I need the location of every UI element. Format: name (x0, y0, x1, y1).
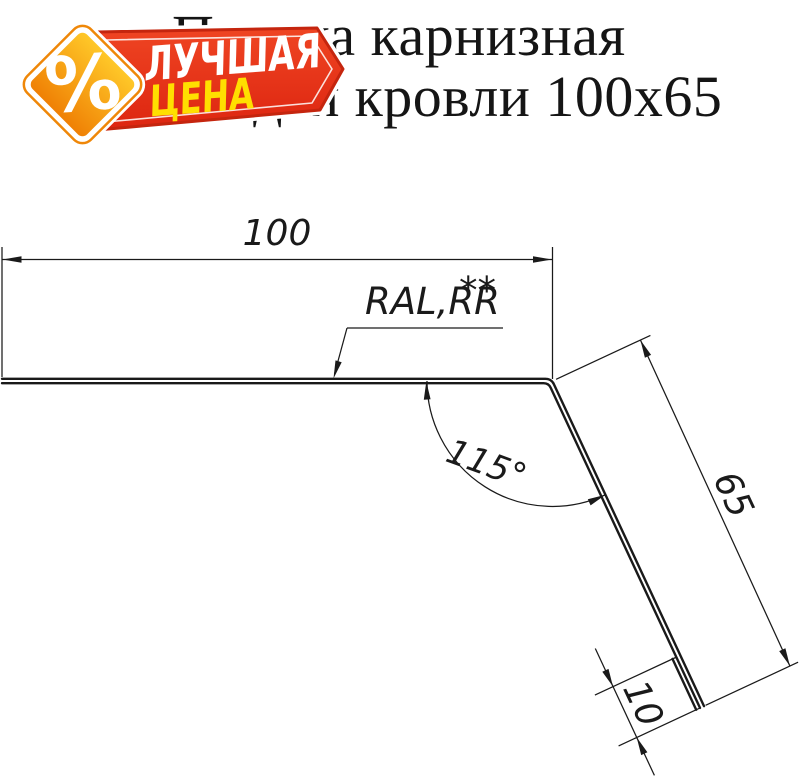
badge-line2: ЦЕНА (149, 69, 255, 127)
coating-note-stars: ** (459, 269, 496, 312)
arrowhead-65-bottom (779, 648, 790, 666)
dim-100-label: 100 (243, 213, 312, 254)
profile-outline (2, 379, 704, 710)
eaves-strip-drawing: 100 RAL,RR ** 65 10 115° (0, 0, 799, 776)
best-price-badge: ЛУЧШАЯ ЦЕНА % (17, 19, 343, 149)
percent-icon: % (42, 36, 124, 130)
arrowhead-10-bottom (637, 737, 648, 755)
coating-leader (335, 328, 504, 374)
arrowhead-leader (334, 360, 342, 378)
arrowhead-10-top (602, 669, 613, 687)
product-technical-image: Планка карнизная для кровли 100x65 (0, 0, 799, 776)
arrowhead-100-right (533, 256, 552, 262)
dim-65-label: 65 (705, 465, 762, 524)
arrowhead-100-left (3, 256, 22, 262)
arrowhead-65-top (640, 340, 651, 358)
dim-10-label: 10 (614, 674, 671, 733)
